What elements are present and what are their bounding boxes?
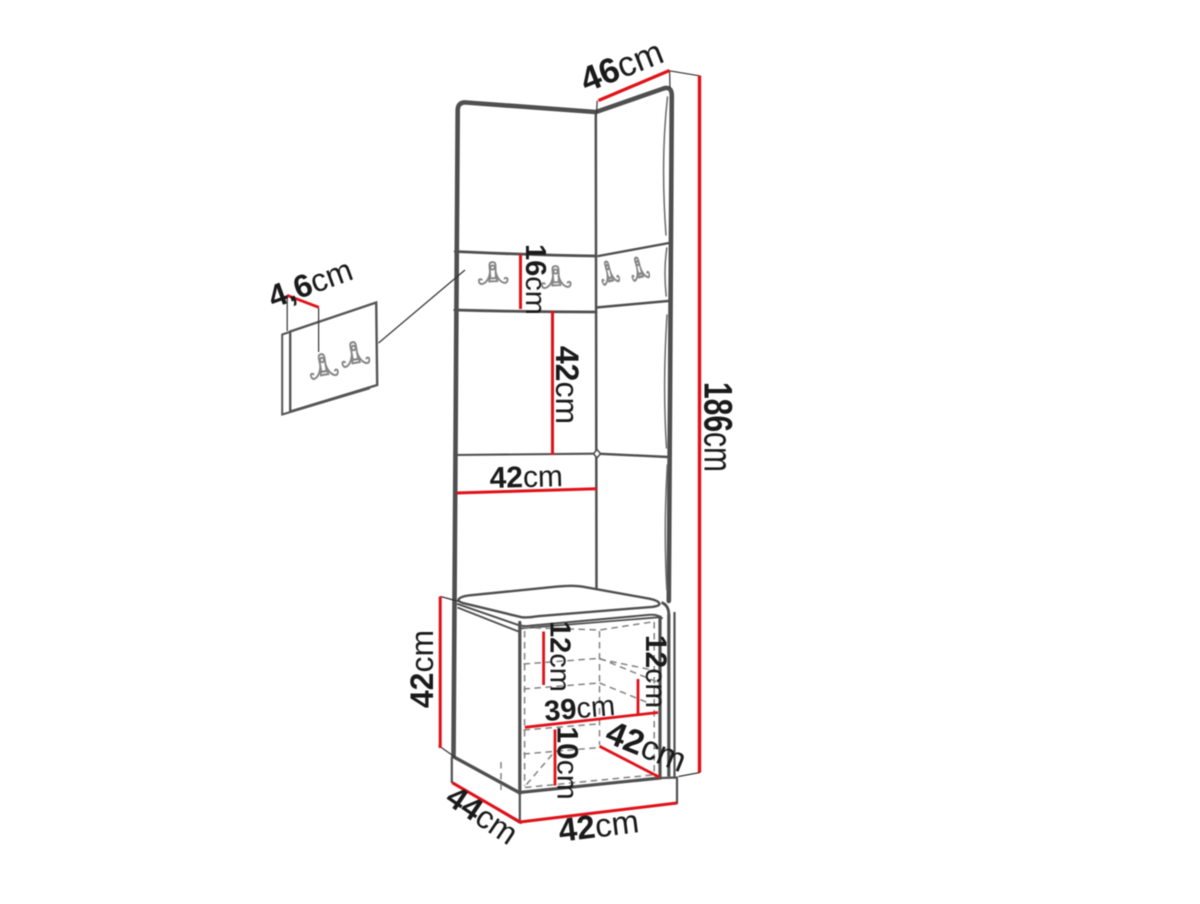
- svg-text:10cm: 10cm: [551, 726, 584, 799]
- svg-text:42cm: 42cm: [404, 630, 440, 708]
- svg-text:186cm: 186cm: [695, 382, 739, 472]
- svg-text:42cm: 42cm: [549, 346, 585, 424]
- svg-text:39cm: 39cm: [543, 690, 616, 728]
- svg-text:12cm: 12cm: [639, 635, 672, 708]
- svg-text:12cm: 12cm: [544, 621, 576, 692]
- svg-text:16cm: 16cm: [519, 244, 551, 315]
- svg-text:42cm: 42cm: [489, 460, 563, 495]
